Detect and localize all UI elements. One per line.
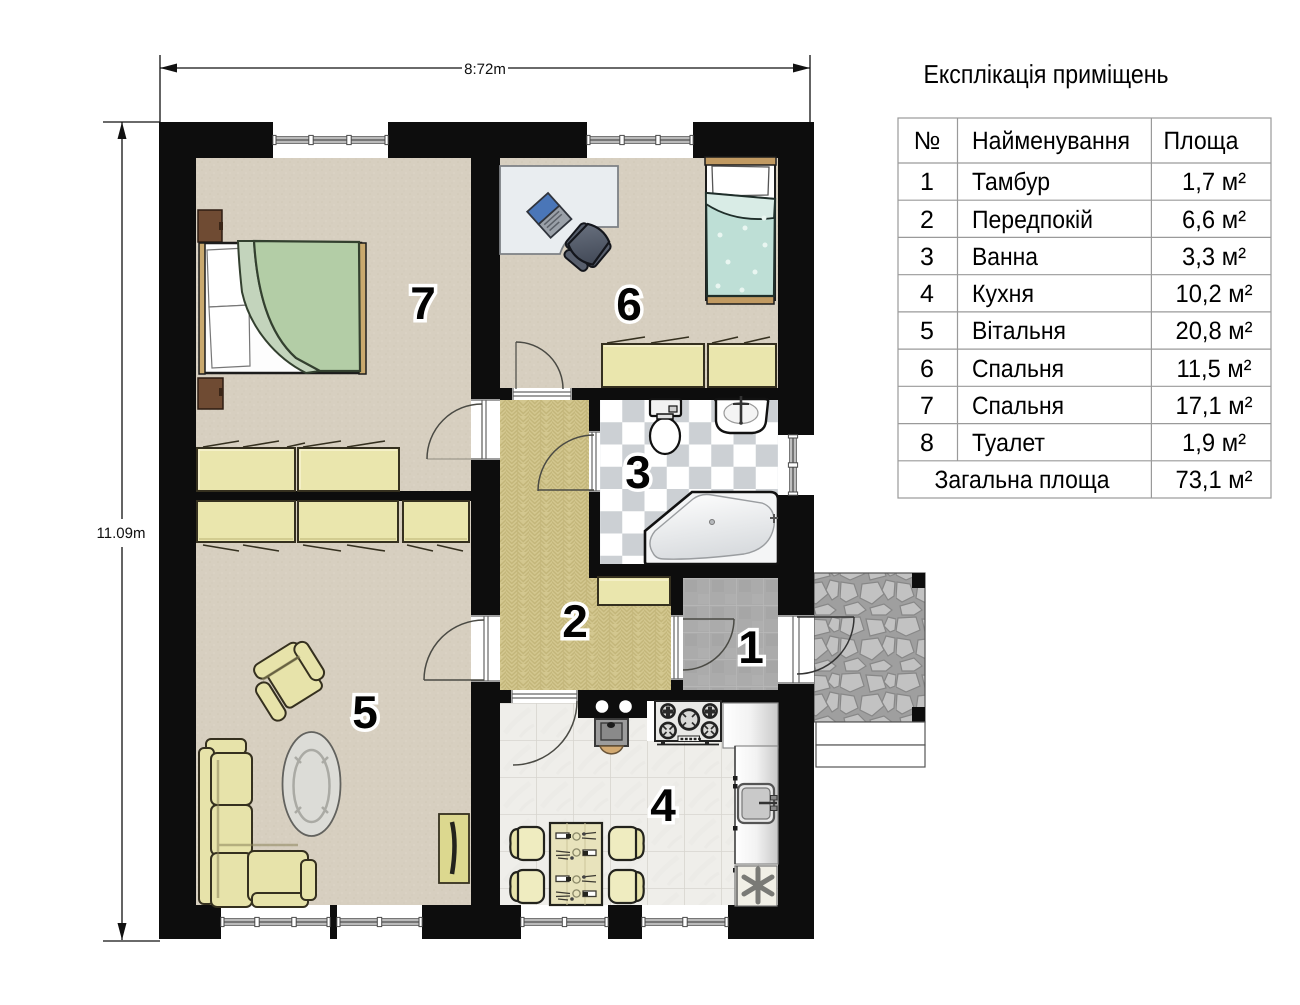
svg-text:6: 6	[616, 278, 642, 330]
svg-text:8:72m: 8:72m	[464, 61, 506, 78]
svg-text:1: 1	[738, 621, 764, 673]
svg-text:Ванна: Ванна	[972, 243, 1038, 271]
svg-text:7: 7	[410, 277, 436, 329]
svg-text:№: №	[914, 127, 941, 155]
svg-text:Кухня: Кухня	[972, 280, 1034, 308]
svg-text:Найменування: Найменування	[972, 127, 1130, 155]
svg-text:Вітальня: Вітальня	[972, 317, 1066, 345]
svg-text:Спальня: Спальня	[972, 392, 1064, 420]
svg-text:Площа: Площа	[1164, 127, 1239, 155]
svg-text:5: 5	[920, 317, 934, 345]
svg-text:4: 4	[650, 779, 676, 831]
svg-text:73,1 м²: 73,1 м²	[1176, 466, 1253, 494]
svg-text:Туалет: Туалет	[972, 429, 1046, 457]
svg-text:5: 5	[352, 686, 378, 738]
svg-text:1,9 м²: 1,9 м²	[1182, 429, 1246, 457]
svg-text:3: 3	[625, 446, 651, 498]
svg-text:8: 8	[920, 429, 934, 457]
svg-text:Тамбур: Тамбур	[972, 168, 1050, 196]
svg-text:4: 4	[920, 280, 934, 308]
svg-text:6,6 м²: 6,6 м²	[1182, 206, 1246, 234]
svg-text:Загальна площа: Загальна площа	[935, 466, 1110, 494]
svg-text:10,2 м²: 10,2 м²	[1176, 280, 1253, 308]
svg-text:7: 7	[920, 392, 934, 420]
svg-text:20,8 м²: 20,8 м²	[1176, 317, 1253, 345]
svg-text:Експлікація приміщень: Експлікація приміщень	[924, 59, 1169, 89]
svg-text:2: 2	[920, 206, 934, 234]
svg-text:11,5 м²: 11,5 м²	[1177, 355, 1252, 383]
svg-text:2: 2	[562, 595, 588, 647]
svg-text:6: 6	[920, 355, 934, 383]
svg-text:3,3 м²: 3,3 м²	[1182, 243, 1246, 271]
svg-text:1,7 м²: 1,7 м²	[1182, 168, 1246, 196]
svg-text:Спальня: Спальня	[972, 355, 1064, 383]
svg-text:3: 3	[920, 243, 934, 271]
svg-text:11.09m: 11.09m	[97, 525, 146, 542]
svg-text:Передпокій: Передпокій	[972, 206, 1093, 234]
svg-text:17,1 м²: 17,1 м²	[1176, 392, 1253, 420]
svg-text:1: 1	[920, 168, 934, 196]
